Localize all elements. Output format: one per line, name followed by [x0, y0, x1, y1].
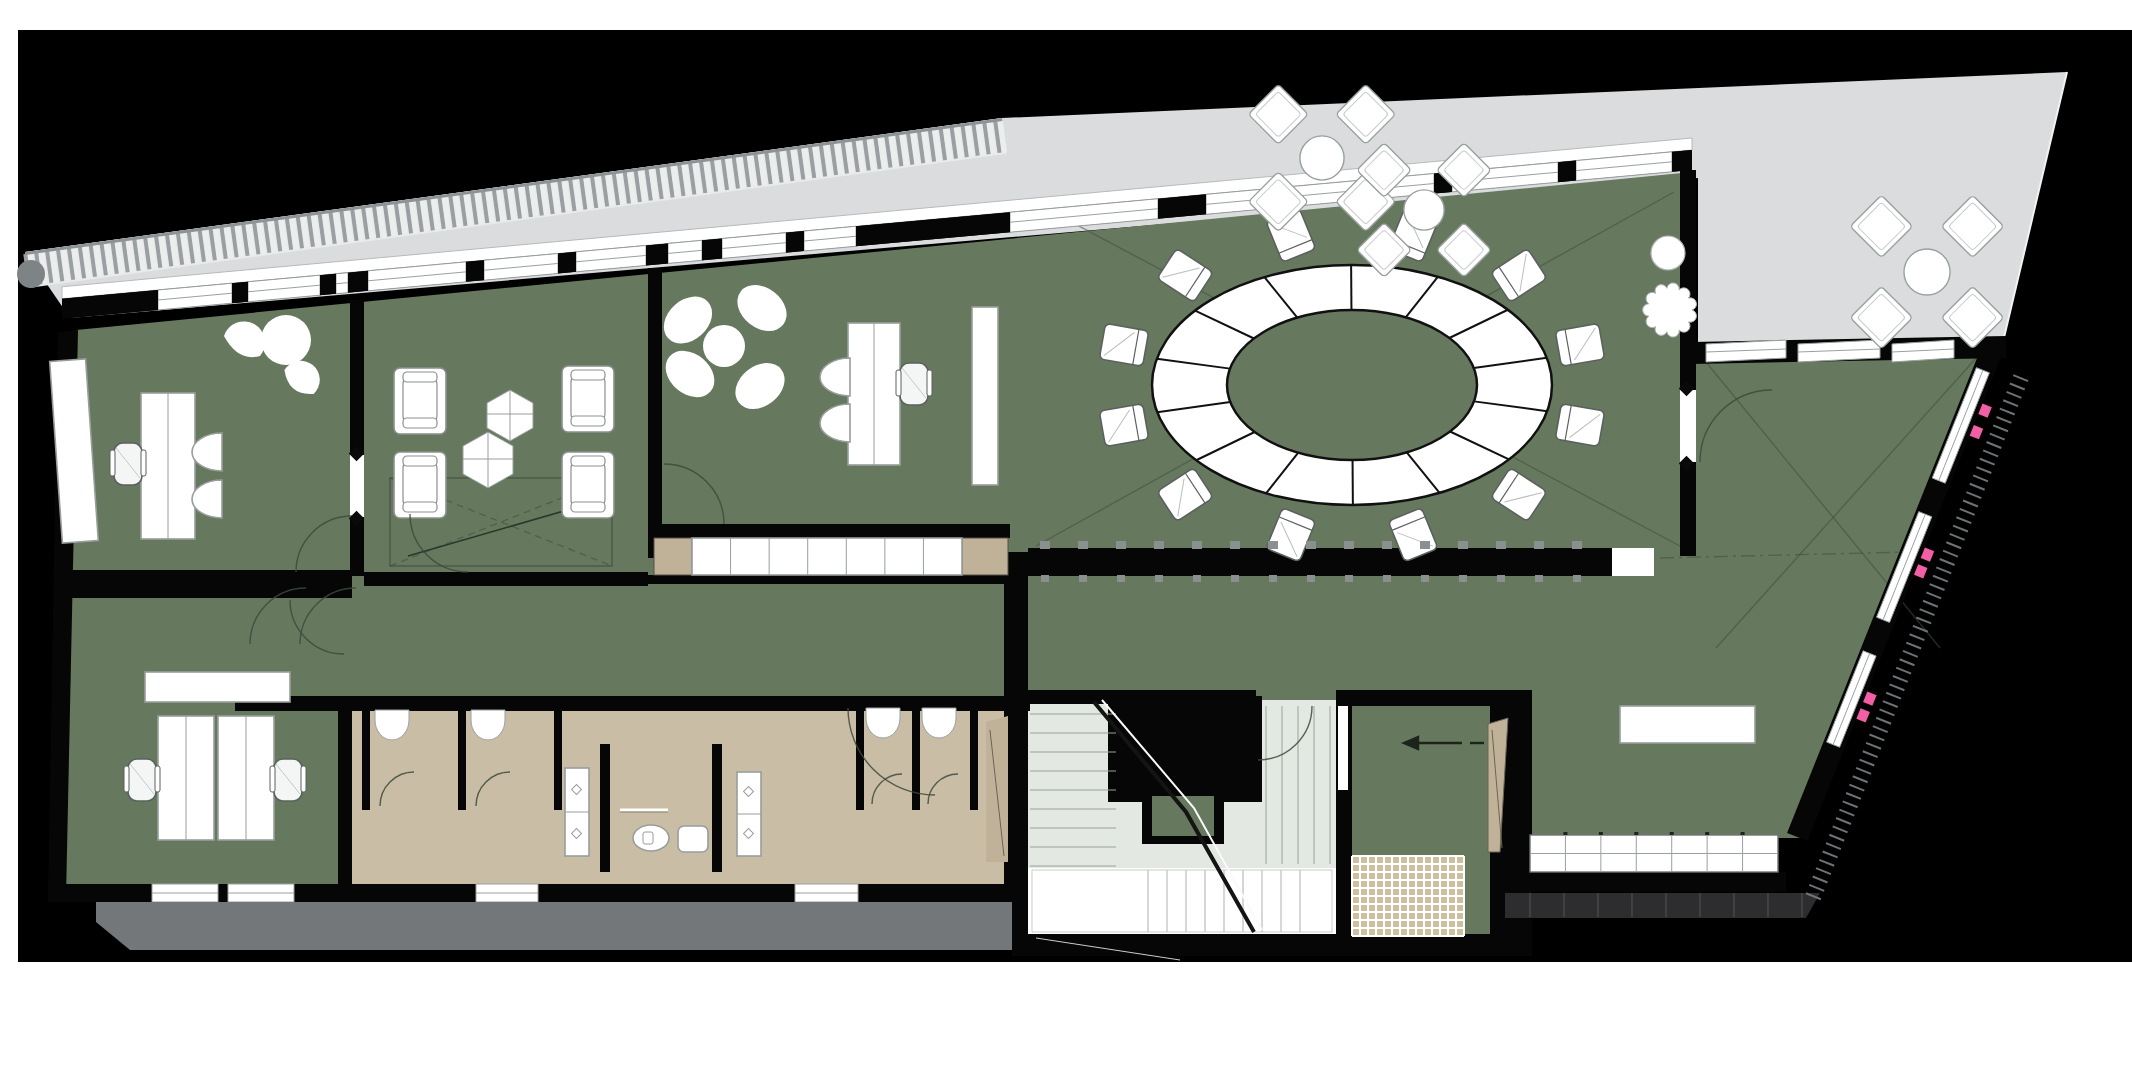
mullion-tick: [1269, 575, 1277, 582]
office-chair-icon: [124, 759, 160, 801]
wall-office2-cabinets: [654, 524, 1010, 538]
wall-cabinets-corridor: [640, 575, 1012, 584]
mullion-tick: [1382, 541, 1392, 549]
conference-south-wall: [1028, 548, 1612, 576]
exterior-steps: [1505, 893, 1820, 918]
armchair-icon: [394, 368, 446, 434]
mullion-tick: [1192, 541, 1202, 549]
wall-pier: [1672, 150, 1692, 172]
mullion-tick: [1496, 541, 1506, 549]
mullion-tick: [1306, 541, 1316, 549]
mullion-tick: [1572, 541, 1582, 549]
tall-cabinet: [972, 307, 998, 485]
steps-base: [1505, 893, 1820, 918]
conference-chair-icon: [1555, 323, 1605, 366]
wall-conference-rightroom: [1680, 462, 1696, 556]
mullion-tick: [1458, 541, 1468, 549]
mullion-tick: [1116, 541, 1126, 549]
wall-pier: [1558, 161, 1576, 183]
sideboard: [145, 672, 290, 702]
wall-pier: [558, 252, 576, 274]
mullion-tick: [1040, 541, 1050, 549]
mullion-tick: [1230, 541, 1240, 549]
mullion-tick: [1497, 575, 1505, 582]
wall-pier: [646, 243, 668, 265]
wall-pier: [466, 260, 484, 282]
washroom-floor: [345, 700, 1010, 890]
conference-ring-table: [1152, 265, 1552, 505]
wall-meeting-corridor: [364, 572, 648, 586]
mullion-tick: [1421, 575, 1429, 582]
sidewalk: [96, 902, 1012, 950]
mullion-tick: [1041, 575, 1049, 582]
wall-office1-office2: [62, 570, 352, 598]
terrace-doors: [1706, 340, 1954, 362]
wall-office1-meeting: [350, 300, 364, 576]
wall-pier: [232, 282, 248, 303]
wall-pier: [702, 239, 722, 261]
floor-plan-drawing: [0, 0, 2132, 1066]
glass-wall-door: [1612, 548, 1654, 576]
elevator-pit: [1142, 792, 1224, 844]
office-chair-icon: [896, 363, 932, 405]
tree-icon: [1651, 236, 1685, 270]
conference-chair-icon: [1099, 323, 1149, 366]
wall-pier: [786, 231, 804, 253]
mullion-tick: [1078, 541, 1088, 549]
office-chair-icon: [110, 443, 146, 485]
mullion-tick: [1535, 575, 1543, 582]
office-chair-icon: [110, 443, 146, 485]
conference-chair-icon: [1555, 404, 1605, 447]
vestibule-door-opening: [1338, 706, 1348, 790]
outdoor-table-icon: [1404, 190, 1444, 230]
mullion-tick: [1154, 541, 1164, 549]
shower-tray: [678, 826, 708, 852]
washroom-west-wall: [338, 700, 352, 890]
armchair-icon: [394, 452, 446, 518]
mullion-tick: [1307, 575, 1315, 582]
mullion-tick: [1573, 575, 1581, 582]
mullion-tick: [1383, 575, 1391, 582]
wall-pier: [348, 271, 368, 293]
mullion-tick: [1079, 575, 1087, 582]
stair-lower-flight-floor: [1028, 868, 1338, 934]
wall-meeting-office2: [648, 268, 662, 558]
corridor-cabinet-row: [654, 538, 1008, 575]
kitchen-south-wall: [1524, 872, 1786, 892]
mullion-tick: [1344, 541, 1354, 549]
mullion-tick: [1345, 575, 1353, 582]
conference-chair-icon: [1099, 404, 1149, 447]
armchair-icon: [562, 452, 614, 518]
table-inner: [1227, 310, 1477, 460]
mullion-tick: [1155, 575, 1163, 582]
entrance-south-wall: [1012, 934, 1532, 956]
mullion-tick: [1459, 575, 1467, 582]
table: [1620, 706, 1755, 743]
mullion-tick: [1231, 575, 1239, 582]
wall-pier: [320, 274, 336, 295]
office-chair-icon: [270, 759, 306, 801]
outdoor-table-icon: [1300, 136, 1344, 180]
mullion-tick: [1534, 541, 1544, 549]
entrance-doormat: [1352, 856, 1464, 936]
mullion-tick: [1193, 575, 1201, 582]
kitchen-counter: [1530, 832, 1778, 872]
entrance-vestibule-floor: [1352, 706, 1490, 856]
office-chair-icon: [124, 759, 160, 801]
mullion-tick: [1117, 575, 1125, 582]
mullion-tick: [1420, 541, 1430, 549]
outdoor-table-icon: [1904, 249, 1950, 295]
office-chair-icon: [896, 363, 932, 405]
vestibule-north-wall: [1352, 690, 1532, 706]
armchair-icon: [562, 366, 614, 432]
floor-plan-stage: [0, 0, 2132, 1066]
mullion-tick: [1268, 541, 1278, 549]
canopy-end-cap: [17, 260, 45, 288]
office-chair-icon: [270, 759, 306, 801]
